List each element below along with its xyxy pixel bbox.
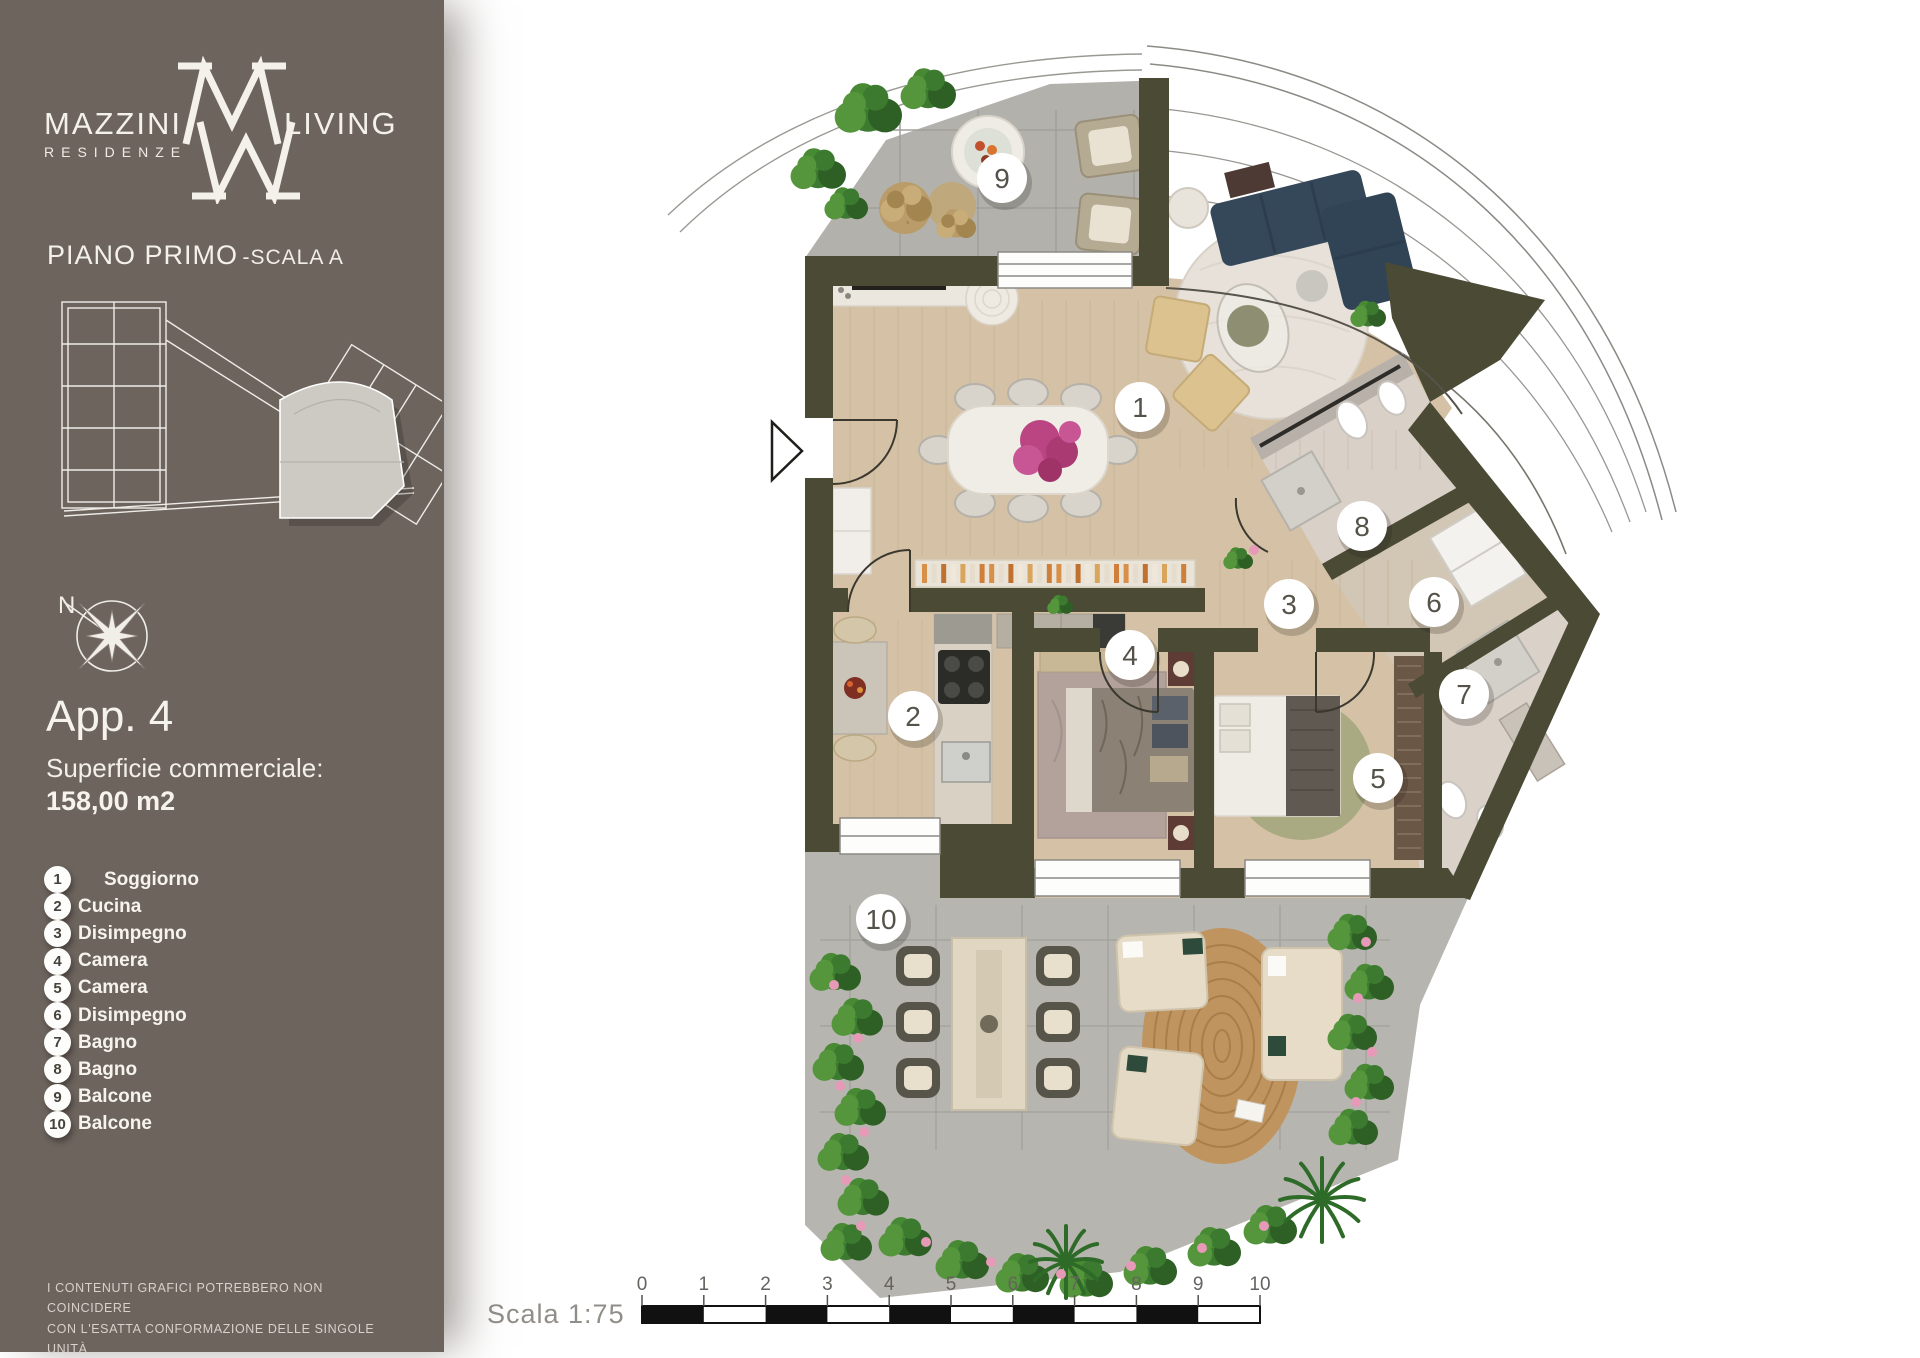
- legend-item-label: Disimpegno: [78, 1005, 187, 1027]
- key-plan: [42, 282, 442, 534]
- plan-marker-label: 1: [1132, 392, 1148, 423]
- legend-num-badge: 2: [44, 893, 71, 920]
- legend: 1 Soggiorno 2 Cucina 3 Disimpegno 4 Came…: [44, 866, 199, 1138]
- scale-tick-label: 5: [946, 1274, 957, 1295]
- legend-num-badge: 3: [44, 920, 71, 947]
- legend-num-badge: 5: [44, 975, 71, 1002]
- scale-tick-label: 9: [1193, 1274, 1204, 1295]
- plan-marker-label: 7: [1456, 679, 1472, 710]
- legend-item: 2 Cucina: [44, 893, 199, 920]
- floor-heading: PIANO PRIMO -SCALA A: [47, 240, 344, 271]
- scale-tick-label: 10: [1249, 1274, 1270, 1295]
- scale-tick-label: 1: [699, 1274, 710, 1295]
- legend-item: 1 Soggiorno: [44, 866, 199, 893]
- legend-num-badge: 6: [44, 1002, 71, 1029]
- scale-label: Scala 1:75: [487, 1299, 625, 1329]
- legend-item-label: Bagno: [78, 1059, 137, 1081]
- scale-tick-label: 3: [822, 1274, 833, 1295]
- legend-num-badge: 10: [44, 1111, 71, 1138]
- entrance-arrow-icon: [772, 422, 802, 480]
- scale-tick-label: 0: [637, 1274, 648, 1295]
- legend-item: 6 Disimpegno: [44, 1002, 199, 1029]
- legend-item: 7 Bagno: [44, 1029, 199, 1056]
- apartment-title: App. 4: [46, 692, 173, 742]
- compass-icon: [30, 572, 200, 702]
- legend-item-label: Bagno: [78, 1032, 137, 1054]
- plan-marker-label: 4: [1122, 640, 1138, 671]
- plan-marker-label: 10: [865, 904, 896, 935]
- scale-tick-label: 6: [1008, 1274, 1019, 1295]
- sidebar: MAZZINI LIVING RESIDENZE PIANO PRIMO -SC…: [0, 0, 444, 1352]
- disclaimer-line2: CON L'ESATTA CONFORMAZIONE DELLE SINGOLE…: [47, 1319, 387, 1358]
- disclaimer-line1: I CONTENUTI GRAFICI POTREBBERO NON COINC…: [47, 1278, 387, 1319]
- scale-tick-label: 7: [1069, 1274, 1080, 1295]
- legend-num-badge: 7: [44, 1029, 71, 1056]
- legend-item: 3 Disimpegno: [44, 920, 199, 947]
- plan-marker-label: 9: [994, 163, 1010, 194]
- plan-marker-label: 3: [1281, 589, 1297, 620]
- legend-item-label: Camera: [78, 977, 148, 999]
- legend-item-label: Soggiorno: [104, 869, 199, 891]
- legend-item-label: Disimpegno: [78, 923, 187, 945]
- legend-item-label: Camera: [78, 950, 148, 972]
- brand-subtitle: RESIDENZE: [44, 144, 187, 160]
- brand-monogram-icon: [168, 44, 318, 204]
- brochure-page: 12345678910 Scala 1:75 012345678910 MAZZ…: [0, 0, 1920, 1358]
- legend-num-badge: 8: [44, 1056, 71, 1083]
- brand-name-left: MAZZINI: [44, 106, 182, 142]
- legend-item-label: Cucina: [78, 896, 141, 918]
- scale-tick-label: 2: [760, 1274, 771, 1295]
- legend-num-badge: 4: [44, 948, 71, 975]
- legend-item: 5 Camera: [44, 975, 199, 1002]
- plan-marker-label: 6: [1426, 587, 1442, 618]
- legend-item: 9 Balcone: [44, 1084, 199, 1111]
- legend-item-label: Balcone: [78, 1086, 152, 1108]
- plan-marker-label: 5: [1370, 763, 1386, 794]
- legend-num-badge: 1: [44, 866, 71, 893]
- floor-subtitle: -SCALA A: [242, 246, 343, 269]
- legend-num-badge: 9: [44, 1084, 71, 1111]
- scale-tick-label: 4: [884, 1274, 895, 1295]
- scale-tick-label: 8: [1131, 1274, 1142, 1295]
- area-label: Superficie commerciale:: [46, 753, 323, 784]
- plan-marker-label: 8: [1354, 511, 1370, 542]
- legend-item: 4 Camera: [44, 948, 199, 975]
- legend-item: 10 Balcone: [44, 1111, 199, 1138]
- legend-item: 8 Bagno: [44, 1056, 199, 1083]
- legend-item-label: Balcone: [78, 1113, 152, 1135]
- floor-title: PIANO PRIMO: [47, 240, 238, 270]
- area-value: 158,00 m2: [46, 786, 175, 817]
- plan-marker-label: 2: [905, 701, 921, 732]
- disclaimer: I CONTENUTI GRAFICI POTREBBERO NON COINC…: [47, 1278, 387, 1358]
